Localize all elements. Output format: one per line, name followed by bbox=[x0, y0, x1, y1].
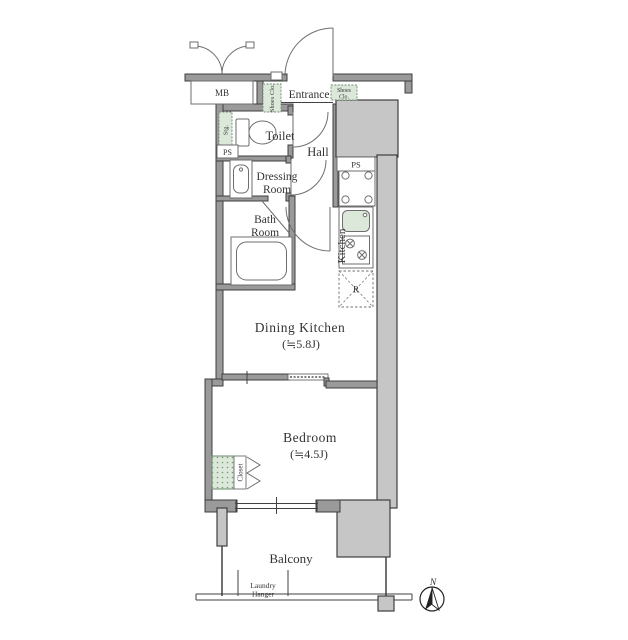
bedroom-size: (≒4.5J) bbox=[290, 447, 328, 461]
washing-machine-pan bbox=[339, 169, 375, 206]
sliding-door-dk-bedroom bbox=[288, 374, 328, 380]
dressing-room-label-line1: Dressing bbox=[257, 171, 298, 183]
bathtub bbox=[231, 237, 292, 285]
refrigerator-label: R bbox=[353, 285, 359, 295]
shoes-closet-left-label: Shoes Clo. bbox=[270, 84, 276, 112]
wall-right-thick bbox=[377, 155, 397, 508]
bath-room-label-line2: Room bbox=[251, 227, 279, 239]
pillar-top-right bbox=[336, 100, 398, 157]
wall-toilet-right-stub-top bbox=[288, 106, 293, 115]
toilet-door bbox=[293, 112, 328, 147]
wall-entrance-left bbox=[257, 81, 263, 107]
floor-plan-drawing: MB Entrance Shoes Clo. Shoes Clo. Stg. P… bbox=[0, 0, 628, 640]
wall-left-lower bbox=[205, 379, 212, 512]
bath-room-label-line1: Bath bbox=[254, 214, 276, 226]
toilet-label: Toilet bbox=[266, 129, 296, 143]
wall-balcony-left-stub bbox=[217, 508, 227, 546]
dining-kitchen-label: Dining Kitchen bbox=[255, 320, 346, 335]
floor-plan: MB Entrance Shoes Clo. Shoes Clo. Stg. P… bbox=[0, 0, 628, 640]
shoes-closet-right-label-line1: Shoes bbox=[337, 88, 352, 94]
wall-toilet-top bbox=[216, 104, 293, 111]
wall-bedroom-bottom-right bbox=[316, 500, 340, 512]
wall-dk-bedroom-left bbox=[222, 374, 290, 380]
wall-top-right bbox=[333, 74, 412, 81]
laundry-hanger-label-line2: Hanger bbox=[252, 590, 275, 599]
entrance-door bbox=[285, 28, 333, 76]
north-compass bbox=[420, 587, 444, 611]
storage-label: Stg. bbox=[224, 125, 230, 136]
balcony-drain-box bbox=[378, 596, 394, 611]
dressing-room-label-line2: Room bbox=[263, 184, 291, 196]
dressing-sink bbox=[230, 160, 252, 198]
closet-label: Closet bbox=[237, 464, 245, 482]
wall-dressing-right-stub-top bbox=[286, 156, 291, 163]
ps-right-label: PS bbox=[351, 160, 361, 170]
entrance-threshold bbox=[271, 72, 282, 80]
entrance-label: Entrance bbox=[289, 89, 330, 101]
ps-left-label: PS bbox=[223, 148, 232, 157]
mb-doors bbox=[190, 42, 254, 74]
compass-needle-icon bbox=[425, 588, 432, 611]
mb-label: MB bbox=[215, 88, 229, 98]
bedroom-label: Bedroom bbox=[283, 430, 337, 445]
shoes-closet-right-label-line2: Clo. bbox=[339, 95, 349, 101]
balcony-window bbox=[235, 497, 318, 514]
closet-bifold-door bbox=[247, 457, 260, 489]
hall-label: Hall bbox=[307, 145, 329, 159]
wall-bedroom-top-right bbox=[326, 381, 377, 388]
north-label: N bbox=[429, 578, 437, 588]
faucet-icon bbox=[363, 213, 367, 217]
dining-kitchen-size: (≒5.8J) bbox=[282, 337, 320, 351]
kitchen-label: Kitchen bbox=[336, 228, 348, 263]
pillar-bottom-right bbox=[337, 500, 390, 557]
balcony-label: Balcony bbox=[269, 551, 313, 566]
wall-top-right-stub bbox=[405, 81, 412, 93]
